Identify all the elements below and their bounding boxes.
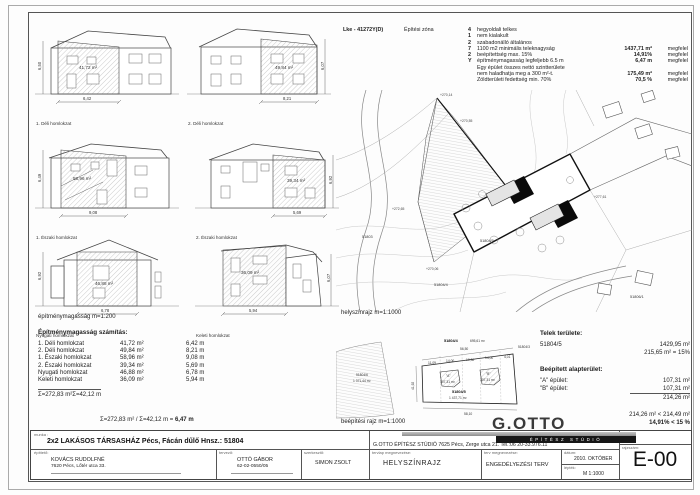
spot-height-label: +270,55 [460, 119, 472, 123]
spot-height-label: +277,61 [594, 195, 606, 199]
dim-left: 41,92 [411, 382, 415, 390]
height-dim: 6,92 [37, 271, 42, 280]
editor-name: SIMON ZSOLT [315, 460, 351, 466]
dim-segment: 14,00 [446, 359, 454, 363]
height-formula: Σ=272,83 m² / Σ=42,12 m = 6,47 m [100, 417, 194, 423]
building-a-area: 107,31 m² [440, 380, 456, 384]
parcel-id-label: 51803 [362, 235, 373, 239]
facade-area-label: 49,84 m² [275, 65, 294, 70]
building-a-row: "A" épület: 107,31 m² [540, 377, 690, 385]
zone-code: Lke - 41272Y(D) [343, 27, 383, 33]
height-calculation-table: Építménymagasság számítás: 1. Déli homlo… [38, 329, 248, 398]
height-dim: 6,50 [37, 61, 42, 70]
built-title: Beépített alapterület: [540, 366, 690, 373]
elevation-east-drawing: 36,09 m² 5,94 6,07 [190, 228, 342, 324]
table-row: Nyugati homlokzat 46,88 m² 6,78 m [38, 370, 248, 377]
height-dim: 6,07 [320, 61, 325, 70]
siteplan-caption: helyszínrajz m=1:1000 [341, 310, 401, 316]
height-dim: 6,49 [37, 173, 42, 182]
dim-top: 56,50 [460, 347, 468, 351]
plan-type: ENGEDÉLYEZÉSI TERV [486, 462, 548, 468]
elevation-south-2: 49,84 m² 8,21 6,07 2. Déli homlokzat [182, 16, 334, 128]
elevation-west: 46,88 m² 6,78 6,92 Nyugati homlokzat [30, 228, 182, 340]
facade-area-label: 46,88 m² [95, 281, 114, 286]
parcel-id-label: 51804/4 [434, 283, 448, 287]
dim-segment: 14,00 [485, 356, 493, 360]
elevation-caption: 2. Déli homlokzat [188, 121, 223, 126]
height-result: 6,47 m [175, 417, 194, 423]
width-dim: 6,42 [83, 96, 92, 101]
spot-height-label: +272,65 [392, 207, 404, 211]
elevation-south-1: 41,72 m² 6,42 6,50 1. Déli homlokzat [30, 16, 182, 128]
building-b-area: 107,31 m² [480, 378, 496, 382]
elevation-north-2: 39,34 m² 5,69 6,92 2. Északi homlokzat [190, 130, 342, 242]
top-parcel-area: 695,61 m² [470, 339, 486, 343]
scale-value: M 1:1000 [583, 471, 604, 477]
calc-title: Építménymagasság számítás: [38, 329, 248, 336]
elevation-north-1: 58,96 m² 9,08 6,49 1. Északi homlokzat [30, 130, 182, 242]
facade-area-label: 39,34 m² [287, 178, 306, 183]
height-dim: 6,07 [326, 273, 331, 282]
table-row: Keleti homlokzat 36,09 m² 5,94 m [38, 377, 248, 384]
facade-area-label: 41,72 m² [79, 65, 98, 70]
left-parcel-area: 1 371,44 m² [353, 379, 371, 383]
designer-name: OTTÓ GÁBOR [237, 457, 273, 463]
plot-title: Telek területe: [540, 330, 690, 337]
dim-segment: 4,01 [504, 355, 511, 359]
height-dim: 6,92 [328, 175, 333, 184]
width-dim: 5,69 [293, 210, 302, 215]
sum-area: Σ=272,83 m² [38, 389, 72, 398]
table-row: 1. Déli homlokzat 41,72 m² 6,42 m [38, 341, 248, 348]
elevation-west-drawing: 46,88 m² 6,78 6,92 [30, 228, 182, 324]
architectural-sheet: { "zone": { "code": "Lke - 41272Y(D)", "… [0, 0, 700, 495]
building-b-row: "B" épület: 107,31 m² [540, 385, 690, 393]
top-parcel-id: 51804/4 [444, 339, 459, 343]
neighbor-houses [597, 90, 680, 295]
client-name: KOVÁCS RUDOLFNÉ [51, 457, 105, 463]
width-dim: 9,08 [89, 210, 98, 215]
spot-height-label: +270,14 [440, 93, 452, 97]
width-dim: 5,94 [249, 308, 258, 313]
facade-area-label: 58,96 m² [73, 176, 92, 181]
drawing-number: E-00 [621, 448, 689, 472]
elevation-north-1-drawing: 58,96 m² 9,08 6,49 [30, 130, 182, 230]
parcel-id: 51804/5 [452, 390, 466, 394]
zone-row: Zöldterületi fedettség min. 70%70,5 %meg… [468, 77, 688, 83]
editor-label: szerkesztő: [304, 450, 324, 455]
client-label: építtető: [34, 450, 48, 455]
elevation-caption: 1. Déli homlokzat [36, 121, 71, 126]
scale-label: lépték: [564, 465, 576, 470]
elevation-south-2-drawing: 49,84 m² 8,21 6,07 [182, 16, 334, 116]
elevation-north-2-drawing: 39,34 m² 5,69 6,92 [190, 130, 342, 230]
sum-length: Σ=42,12 m [72, 389, 101, 398]
dim-segment: 10,30 [466, 358, 474, 362]
date-label: dátum: [564, 450, 576, 455]
layout-caption: beépítési rajz m=1:1000 [341, 419, 405, 425]
left-parcel-id: 51804/6 [356, 373, 368, 377]
parcel-id-label: 51804/5 [480, 239, 494, 243]
spot-height-label: +270,06 [426, 267, 438, 271]
zone-title: Építési zóna [404, 27, 434, 33]
parcel-area: 1 437,71 m² [449, 396, 467, 400]
elevation-south-1-drawing: 41,72 m² 6,42 6,50 [30, 16, 182, 116]
table-row: 1. Északi homlokzat 58,96 m² 9,08 m [38, 355, 248, 362]
zone-rows: 4hegyoldali telkes 1nem kialakult 2szaba… [468, 27, 688, 84]
designer-registration: 62-02-0550/05 [237, 464, 268, 469]
plan-type-label: terv megnevezése: [484, 450, 518, 455]
facade-area-label: 36,09 m² [241, 270, 260, 275]
munka-label: munka : [34, 432, 48, 437]
studio-logo-subtitle: ÉPÍTÉSZ STÚDIÓ [496, 436, 636, 443]
elevation-scale-caption: építménymagasság m=1:200 [38, 314, 116, 320]
sheet-name: HELYSZÍNRAJZ [383, 460, 441, 467]
sheet-name-label: tervlap megnevezése: [372, 450, 411, 455]
width-dim: 8,21 [283, 96, 292, 101]
plot-allowed: 215,65 m² = 15% [540, 349, 690, 357]
built-total: 214,26 m² [630, 393, 690, 401]
site-plan: +270,14 +270,55 +272,65 +270,06 +277,61 … [336, 90, 692, 312]
parcel-id-label: 51806/1 [630, 295, 644, 299]
date-value: 2010. OKTÓBER [574, 456, 612, 462]
width-dim: 6,78 [101, 308, 110, 313]
table-row: 2. Északi homlokzat 39,34 m² 5,69 m [38, 363, 248, 370]
right-parcel-id: 51804/3 [518, 345, 530, 349]
plot-area-row: 51804/5 1429,95 m² [540, 341, 690, 349]
project-title: 2x2 LAKÁSOS TÁRSASHÁZ Pécs, Fácán dűlő H… [47, 438, 243, 445]
plot-summary: Telek területe: 51804/5 1429,95 m² 215,6… [540, 330, 690, 427]
client-address: 7620 Pécs, Lőtér utca 33. [51, 464, 106, 469]
dim-bottom: 58,10 [464, 412, 472, 416]
elevation-east: 36,09 m² 5,94 6,07 Keleti homlokzat [190, 228, 342, 340]
layout-plan: 51804/6 1 371,44 m² 56,50 51804/4 695,61… [336, 334, 531, 419]
table-sum-row: Σ=272,83 m² Σ=42,12 m [38, 389, 248, 398]
designer-label: tervező: [219, 450, 233, 455]
studio-logo: G.OTTO [492, 414, 566, 434]
dim-segment: 11,09 [428, 361, 436, 365]
